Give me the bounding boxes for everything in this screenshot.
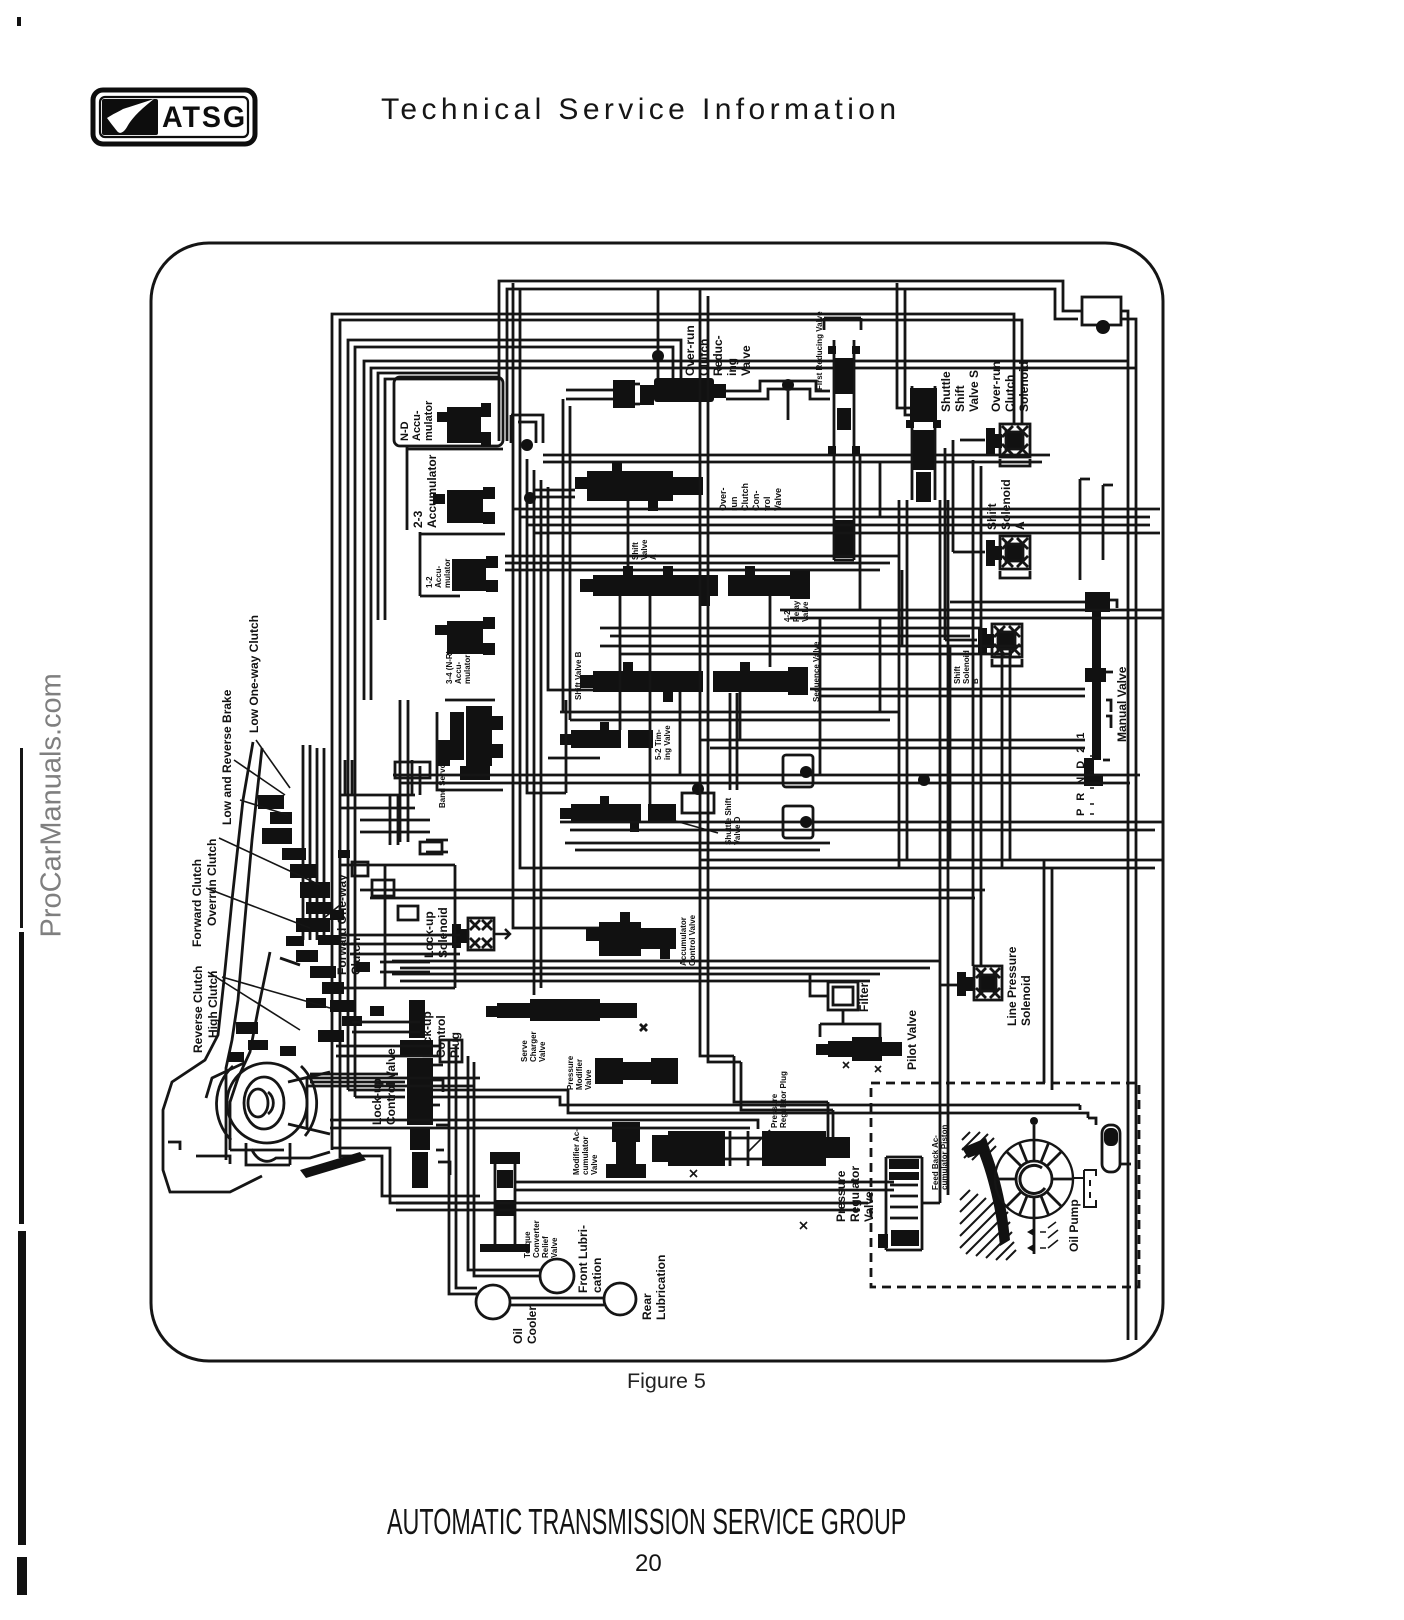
svg-text:Manual Valve: Manual Valve — [1115, 666, 1129, 742]
svg-text:Shift: Shift — [953, 666, 962, 684]
svg-text:cation: cation — [590, 1258, 604, 1293]
svg-text:Reverse Clutch: Reverse Clutch — [191, 966, 205, 1053]
svg-text:Pressure: Pressure — [834, 1170, 848, 1222]
svg-text:Valve: Valve — [584, 1069, 593, 1090]
svg-text:Relief: Relief — [541, 1236, 550, 1258]
svg-text:Converter: Converter — [532, 1220, 541, 1258]
svg-text:N-D: N-D — [399, 421, 411, 441]
svg-text:Forward One-way: Forward One-way — [335, 874, 349, 975]
svg-text:2-3: 2-3 — [411, 510, 425, 528]
svg-text:P R N D 2 1: P R N D 2 1 — [1075, 730, 1087, 816]
svg-text:Solenoid: Solenoid — [1019, 975, 1033, 1026]
svg-text:Solenoid: Solenoid — [1017, 361, 1031, 412]
svg-text:Low One-way Clutch: Low One-way Clutch — [247, 615, 261, 733]
svg-text:1-2: 1-2 — [425, 576, 434, 588]
svg-text:Charger: Charger — [529, 1031, 538, 1062]
svg-text:4-2: 4-2 — [783, 610, 792, 622]
svg-text:Overrun Clutch: Overrun Clutch — [205, 839, 219, 926]
svg-text:Low and Reverse Brake: Low and Reverse Brake — [220, 689, 234, 825]
svg-text:Serve: Serve — [520, 1040, 529, 1062]
svg-text:cumulator Piston: cumulator Piston — [940, 1125, 949, 1190]
svg-text:Valve: Valve — [590, 1154, 599, 1175]
svg-text:Regulator: Regulator — [848, 1166, 862, 1222]
svg-text:mulator: mulator — [423, 400, 435, 441]
svg-text:Clutch: Clutch — [740, 483, 750, 511]
svg-text:Solenoid: Solenoid — [999, 479, 1013, 530]
svg-text:Feed Back Ac-: Feed Back Ac- — [931, 1135, 940, 1190]
svg-text:Accu-: Accu- — [454, 661, 463, 684]
svg-text:Valve: Valve — [550, 1237, 559, 1258]
svg-text:3-4 (N-R): 3-4 (N-R) — [445, 650, 454, 684]
svg-text:Regulator Plug: Regulator Plug — [779, 1071, 788, 1128]
svg-text:Valve: Valve — [773, 488, 783, 511]
svg-text:Line Pressure: Line Pressure — [1005, 946, 1019, 1026]
svg-text:Modifier Ac-: Modifier Ac- — [572, 1129, 581, 1175]
svg-text:Valve: Valve — [538, 1041, 547, 1062]
svg-text:Valve: Valve — [640, 539, 649, 560]
svg-text:Accumulator: Accumulator — [425, 454, 439, 528]
svg-text:First Reducing Valve: First Reducing Valve — [815, 311, 824, 390]
svg-text:ing Valve: ing Valve — [663, 725, 672, 760]
svg-text:Lubrication: Lubrication — [654, 1255, 668, 1320]
svg-text:Cooler: Cooler — [525, 1306, 539, 1344]
svg-text:Accu-: Accu- — [411, 410, 423, 441]
svg-text:Shuttle: Shuttle — [939, 371, 953, 412]
svg-text:Filter: Filter — [857, 982, 871, 1012]
svg-text:Solenoid: Solenoid — [436, 907, 450, 958]
svg-text:Over-: Over- — [718, 487, 728, 511]
svg-text:Shift: Shift — [631, 542, 640, 560]
svg-text:Reduc-: Reduc- — [711, 335, 725, 376]
svg-text:Valve S: Valve S — [967, 370, 981, 412]
svg-text:ing: ing — [725, 358, 739, 376]
svg-text:Shift Valve B: Shift Valve B — [574, 651, 583, 700]
svg-text:Control Valve: Control Valve — [688, 914, 697, 966]
svg-text:Forward Clutch: Forward Clutch — [190, 859, 204, 947]
svg-text:Accu-: Accu- — [434, 565, 443, 588]
svg-text:Pilot Valve: Pilot Valve — [905, 1010, 919, 1070]
svg-text:A: A — [649, 554, 658, 560]
svg-text:Rear: Rear — [640, 1293, 654, 1320]
svg-text:5-2 Tim-: 5-2 Tim- — [654, 729, 663, 760]
svg-text:Pressure: Pressure — [566, 1055, 575, 1090]
svg-text:Clutch: Clutch — [1003, 375, 1017, 412]
svg-text:Front Lubri-: Front Lubri- — [576, 1225, 590, 1293]
svg-text:Modifier: Modifier — [575, 1059, 584, 1090]
svg-text:Pressure: Pressure — [770, 1093, 779, 1128]
svg-text:Over-run: Over-run — [683, 325, 697, 376]
svg-text:Valve: Valve — [739, 345, 753, 376]
svg-text:Oil Pump: Oil Pump — [1067, 1199, 1081, 1252]
svg-text:mulator: mulator — [443, 559, 452, 588]
svg-text:Torque: Torque — [523, 1231, 532, 1258]
svg-text:Band Servo: Band Servo — [438, 763, 447, 808]
svg-text:Valve: Valve — [862, 1191, 876, 1222]
svg-text:Accumulator: Accumulator — [679, 917, 688, 966]
svg-text:cumulator: cumulator — [581, 1136, 590, 1175]
svg-text:mulator: mulator — [463, 655, 472, 684]
svg-text:Shift: Shift — [953, 385, 967, 412]
svg-text:Oil: Oil — [511, 1328, 525, 1344]
svg-text:Over-run: Over-run — [989, 361, 1003, 412]
svg-text:High Clutch: High Clutch — [206, 971, 220, 1038]
